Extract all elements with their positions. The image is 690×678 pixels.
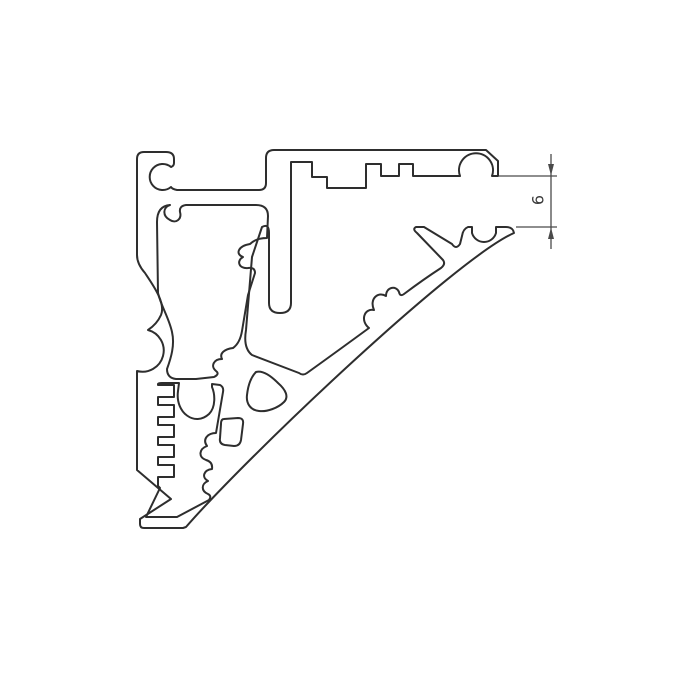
dimension-arrow-bottom bbox=[548, 228, 554, 240]
dimension-6: 6 bbox=[499, 154, 557, 249]
drawing-canvas: 6 bbox=[0, 0, 690, 678]
cavity-upper-left bbox=[157, 205, 268, 379]
cavity-triangle bbox=[247, 372, 287, 412]
profile-outer-outline bbox=[137, 150, 514, 528]
dimension-arrow-top bbox=[548, 164, 554, 176]
cavity-lower-left bbox=[146, 383, 223, 517]
dimension-label: 6 bbox=[529, 195, 548, 205]
profile-drawing: 6 bbox=[0, 0, 690, 678]
cavity-square bbox=[220, 418, 243, 446]
profile-geometry bbox=[137, 150, 514, 528]
